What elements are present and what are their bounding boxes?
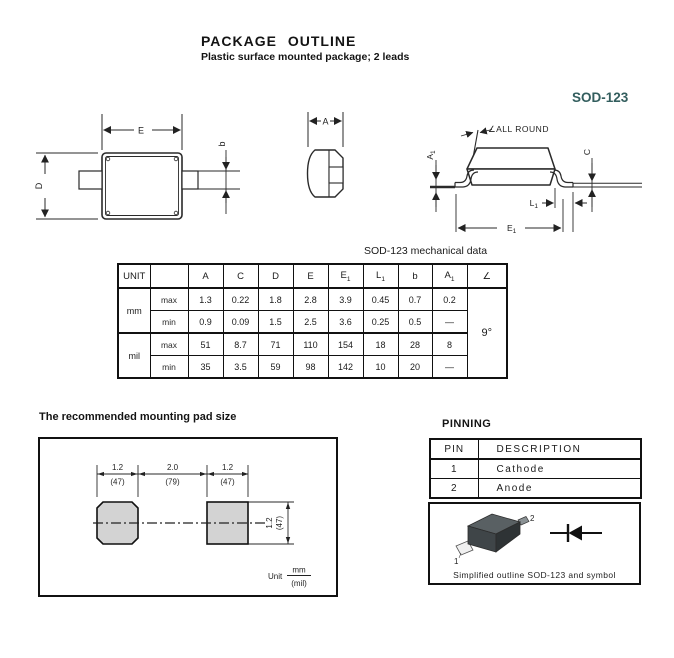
dim-label-e: E bbox=[138, 126, 144, 136]
mech-header-e1: E1 bbox=[328, 264, 363, 288]
package-pin1-label: 1 bbox=[454, 557, 459, 566]
dim-label-c: C bbox=[582, 149, 592, 155]
mounting-pad-drawing: 1.2 (47) 2.0 (79) 1.2 (47) 1.2 (47) Unit… bbox=[38, 437, 338, 597]
pinning-col-pin: PIN bbox=[430, 439, 478, 459]
pinning-table: PIN DESCRIPTION 1 Cathode 2 Anode bbox=[429, 438, 642, 499]
mech-table-caption: SOD-123 mechanical data bbox=[364, 245, 487, 257]
mech-header-a: A bbox=[188, 264, 223, 288]
mech-header-a1: A1 bbox=[432, 264, 467, 288]
mech-header-b: b bbox=[398, 264, 432, 288]
dim-label-b: b bbox=[217, 141, 227, 146]
dim-label-a: A bbox=[322, 117, 328, 127]
pinning-col-desc: DESCRIPTION bbox=[478, 439, 641, 459]
mech-unit-mm: mm bbox=[118, 288, 150, 333]
package-pin2-label: 2 bbox=[530, 514, 535, 523]
pinning-heading: PINNING bbox=[442, 418, 491, 430]
dim-label-l1: L1 bbox=[530, 198, 539, 210]
page-title: PACKAGE OUTLINE bbox=[201, 33, 356, 49]
pad-dim-left-mil: (47) bbox=[110, 478, 125, 487]
mech-header-c: C bbox=[223, 264, 258, 288]
mech-row-mil-max: mil max 51 8.7 71 110 154 18 28 8 bbox=[118, 333, 507, 356]
pad-dim-vert-mm: 1.2 bbox=[265, 517, 274, 529]
mech-header-blank bbox=[150, 264, 188, 288]
mech-header-angle: ∠ bbox=[467, 264, 507, 288]
pinning-row-2: 2 Anode bbox=[430, 479, 641, 499]
side-view-drawing bbox=[430, 130, 642, 233]
pad-section-heading: The recommended mounting pad size bbox=[39, 411, 236, 423]
mech-header-unit: UNIT bbox=[118, 264, 150, 288]
mech-angle-value: 9° bbox=[467, 288, 507, 378]
mech-header-row: UNIT A C D E E1 L1 b A1 ∠ bbox=[118, 264, 507, 288]
pinning-row-1: 1 Cathode bbox=[430, 459, 641, 479]
simplified-outline-caption: Simplified outline SOD-123 and symbol bbox=[430, 570, 639, 580]
datasheet-page: PACKAGE OUTLINE Plastic surface mounted … bbox=[0, 0, 674, 658]
pinning-header-row: PIN DESCRIPTION bbox=[430, 439, 641, 459]
page-subtitle: Plastic surface mounted package; 2 leads bbox=[201, 51, 409, 63]
mech-row-mil-min: min 35 3.5 59 98 142 10 20 — bbox=[118, 356, 507, 379]
mech-header-l1: L1 bbox=[363, 264, 398, 288]
diode-symbol bbox=[550, 524, 602, 542]
package-3d bbox=[456, 514, 529, 558]
mech-header-d: D bbox=[258, 264, 293, 288]
pad-unit-den: (mil) bbox=[291, 579, 307, 588]
simplified-outline-box: 2 1 Simplified outline SOD-123 and symbo… bbox=[428, 502, 641, 585]
mech-header-e: E bbox=[293, 264, 328, 288]
dim-label-e1: E1 bbox=[507, 223, 517, 235]
pad-dim-left-mm: 1.2 bbox=[112, 463, 124, 472]
mech-row-mm-min: min 0.9 0.09 1.5 2.5 3.6 0.25 0.5 — bbox=[118, 311, 507, 334]
pad-dim-mid-mm: 2.0 bbox=[167, 463, 179, 472]
mech-table: UNIT A C D E E1 L1 b A1 ∠ mm max 1.3 0.2… bbox=[117, 263, 508, 379]
pad-dim-right-mil: (47) bbox=[220, 478, 235, 487]
pad-dim-mid-mil: (79) bbox=[165, 478, 180, 487]
pad-unit-num: mm bbox=[292, 566, 306, 575]
pad-dim-right-mm: 1.2 bbox=[222, 463, 234, 472]
all-round-label: ∠ALL ROUND bbox=[488, 124, 549, 134]
pad-dim-vert-mil: (47) bbox=[275, 516, 284, 531]
mech-row-mm-max: mm max 1.3 0.22 1.8 2.8 3.9 0.45 0.7 0.2… bbox=[118, 288, 507, 311]
pad-unit-label: Unit bbox=[268, 572, 283, 581]
dim-label-d: D bbox=[34, 182, 44, 189]
mech-unit-mil: mil bbox=[118, 333, 150, 378]
dim-label-a1: A1 bbox=[425, 150, 437, 160]
package-outline-drawings: E D b A ∠ALL ROUND A1 C L1 E1 bbox=[30, 100, 650, 245]
